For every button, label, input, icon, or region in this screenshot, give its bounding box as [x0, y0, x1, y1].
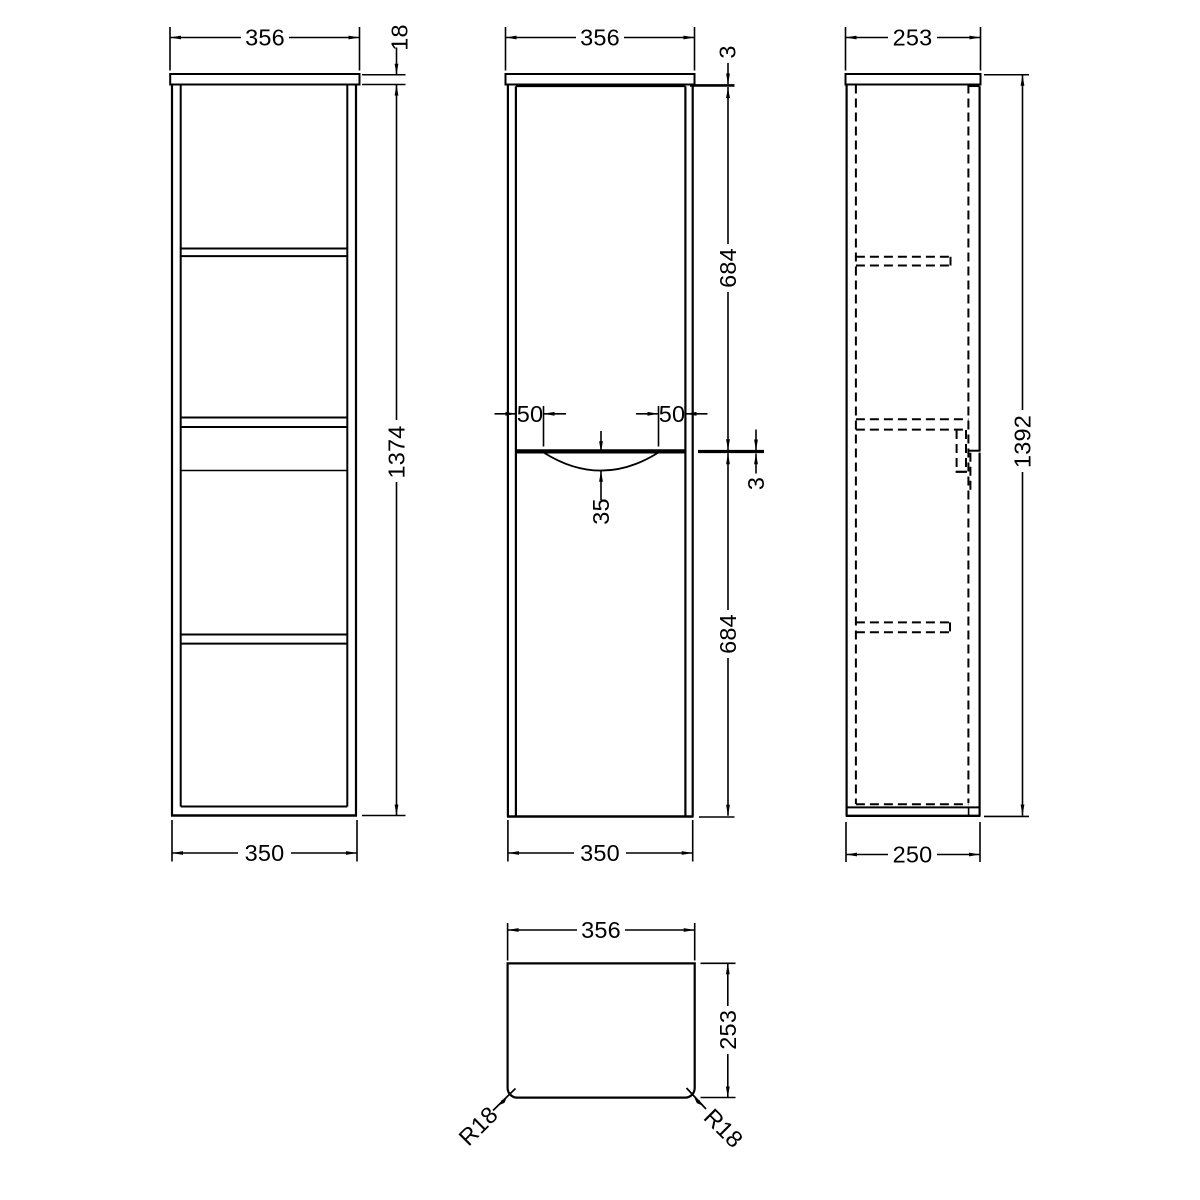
svg-text:50: 50: [659, 401, 686, 427]
svg-text:1392: 1392: [1010, 415, 1036, 468]
svg-text:50: 50: [517, 401, 544, 427]
svg-text:253: 253: [893, 25, 933, 51]
svg-text:18: 18: [387, 24, 413, 51]
svg-text:350: 350: [245, 840, 285, 866]
svg-text:684: 684: [715, 614, 741, 654]
svg-text:3: 3: [715, 45, 741, 58]
svg-text:250: 250: [893, 842, 933, 868]
svg-text:356: 356: [580, 25, 620, 51]
svg-text:1374: 1374: [384, 425, 410, 478]
svg-text:3: 3: [743, 477, 769, 490]
svg-text:35: 35: [588, 498, 614, 525]
svg-text:356: 356: [581, 917, 621, 943]
svg-text:684: 684: [715, 248, 741, 288]
svg-text:253: 253: [715, 1010, 741, 1050]
svg-text:350: 350: [580, 840, 620, 866]
svg-text:356: 356: [245, 25, 285, 51]
